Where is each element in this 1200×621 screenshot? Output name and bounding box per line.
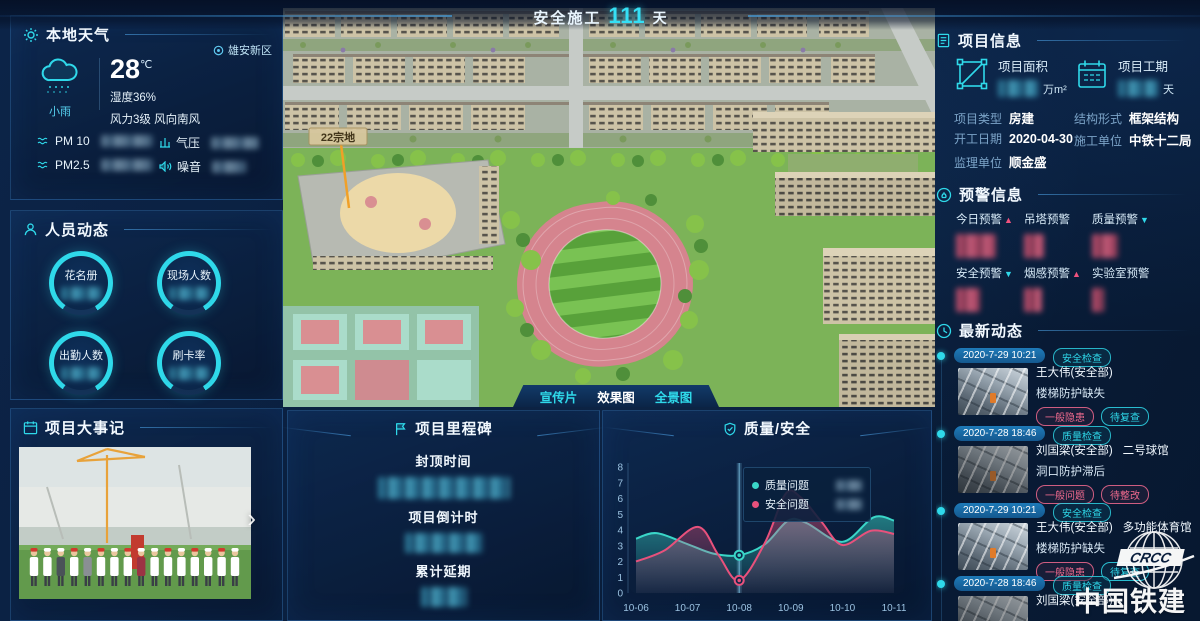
svg-text:10-11: 10-11 bbox=[882, 603, 907, 614]
personnel-panel-title: 人员动态 bbox=[45, 219, 109, 240]
aerial-render-view: 22宗地 bbox=[283, 8, 935, 407]
trend-up-icon: ▲ bbox=[1072, 269, 1081, 279]
wind-label: 风力3级 风向南风 bbox=[110, 111, 200, 127]
stat-label: 项目面积 bbox=[998, 56, 1067, 75]
timeline-dot bbox=[937, 507, 945, 515]
temperature-unit: ℃ bbox=[140, 59, 152, 71]
update-date: 2020-7-28 18:46 bbox=[954, 576, 1045, 591]
calendar-icon bbox=[23, 420, 38, 435]
stat-unit: 天 bbox=[1163, 81, 1174, 97]
temperature-value: 28 bbox=[110, 54, 140, 84]
hazard-tag: 一般问题 bbox=[1036, 485, 1094, 504]
update-photo bbox=[958, 368, 1028, 415]
field-structure-type: 结构形式框架结构 bbox=[1074, 108, 1179, 127]
alert-today: 今日预警▲ bbox=[956, 210, 1013, 258]
location-label: 雄安新区 bbox=[228, 42, 272, 58]
field-project-type: 项目类型房建 bbox=[954, 108, 1034, 127]
building-bottom-right bbox=[839, 340, 935, 407]
pressure-icon bbox=[159, 137, 171, 148]
alerts-title: 预警信息 bbox=[959, 184, 1023, 205]
aerial-render: 22宗地 bbox=[283, 8, 935, 407]
top-header: 安全施工 111 天 bbox=[0, 0, 1200, 30]
redacted-value bbox=[421, 587, 467, 607]
area-icon bbox=[954, 56, 990, 97]
milestone-countdown: 项目倒计时 bbox=[288, 507, 599, 558]
speaker-icon bbox=[159, 161, 172, 172]
safety-series-dot bbox=[752, 501, 759, 508]
svg-text:3: 3 bbox=[617, 541, 623, 552]
redacted-value bbox=[169, 367, 209, 380]
events-panel-title: 项目大事记 bbox=[45, 417, 125, 438]
milestone-label: 项目倒计时 bbox=[288, 507, 599, 526]
hazard-tag: 一般隐患 bbox=[1036, 407, 1094, 426]
updates-list: 2020-7-29 10:21 安全检查 王大伟(安全部) 楼梯防护缺失 一般隐… bbox=[936, 340, 1200, 621]
haze-icon bbox=[37, 136, 50, 147]
personnel-panel: 人员动态 花名册 现场人数 出勤人数 刷卡率 bbox=[10, 210, 283, 400]
update-issue: 洞口防护滞后 bbox=[1036, 463, 1200, 479]
redacted-value bbox=[956, 234, 996, 258]
weather-panel: 本地天气 雄安新区 bbox=[10, 15, 283, 200]
alert-safety: 安全预警▼ bbox=[956, 264, 1013, 312]
plot-label: 22宗地 bbox=[321, 130, 355, 144]
svg-text:10-09: 10-09 bbox=[778, 603, 804, 614]
alert-crane: 吊塔预警 bbox=[1024, 210, 1072, 258]
field-start-date: 开工日期2020-04-30 bbox=[954, 130, 1073, 147]
stat-label: 项目工期 bbox=[1118, 56, 1174, 75]
update-date: 2020-7-29 10:21 bbox=[954, 503, 1045, 518]
timeline-dot bbox=[937, 430, 945, 438]
redacted-value bbox=[836, 480, 862, 491]
location-pin-icon bbox=[213, 45, 224, 56]
view-button-render[interactable]: 效果图 bbox=[597, 387, 635, 406]
update-issue: 楼梯防护缺失 bbox=[1036, 385, 1200, 401]
status-tag: 待整改 bbox=[1101, 485, 1149, 504]
svg-text:10-08: 10-08 bbox=[726, 603, 752, 614]
chart-tooltip: 质量问题 安全问题 bbox=[743, 467, 871, 522]
project-info-section: 项目信息 项目面积 万m² 项目 bbox=[936, 22, 1196, 174]
quality-safety-title: 质量/安全 bbox=[744, 418, 811, 439]
quality-series-label: 质量问题 bbox=[765, 477, 809, 493]
metric-label: PM 10 bbox=[55, 134, 90, 148]
tooltip-row-safety: 安全问题 bbox=[752, 496, 862, 512]
milestone-label: 封顶时间 bbox=[288, 451, 599, 470]
updates-section: 最新动态 2020-7-29 10:21 安全检查 王大伟(安全部) 楼梯防护缺… bbox=[936, 312, 1200, 621]
update-entry[interactable]: 2020-7-28 18:46 质量检查 刘国梁(安全部)二号球馆 洞口防护滞后… bbox=[936, 426, 1200, 498]
header-line-right bbox=[748, 15, 1200, 17]
safety-days-unit: 天 bbox=[653, 8, 667, 28]
gauge-roster: 花名册 bbox=[49, 251, 113, 315]
metric-label: 噪音 bbox=[177, 158, 201, 175]
alert-quality: 质量预警▼ bbox=[1092, 210, 1149, 258]
update-entry[interactable]: 2020-7-28 18:46 质量检查 刘国梁(安全部) bbox=[936, 576, 1200, 621]
stat-project-area: 项目面积 万m² bbox=[954, 56, 1067, 97]
milestone-panel-title: 项目里程碑 bbox=[415, 418, 493, 439]
svg-text:10-10: 10-10 bbox=[830, 603, 856, 614]
view-switcher: 宣传片 效果图 全景图 bbox=[513, 385, 719, 407]
svg-text:6: 6 bbox=[617, 494, 623, 505]
quality-safety-panel: 质量/安全 01234567810-0610-0710-0810-0910-10… bbox=[602, 410, 932, 621]
update-person: 刘国梁(安全部) bbox=[1036, 445, 1113, 457]
milestone-panel: 项目里程碑 封顶时间 项目倒计时 累计延期 bbox=[287, 410, 600, 621]
metric-label: PM2.5 bbox=[55, 158, 90, 172]
gauge-label: 出勤人数 bbox=[59, 347, 103, 363]
alarm-bell-icon bbox=[936, 187, 952, 203]
milestone-topping-date: 封顶时间 bbox=[288, 451, 599, 504]
status-tag: 待复查 bbox=[1101, 407, 1149, 426]
clock-icon bbox=[936, 323, 952, 339]
update-photo bbox=[958, 446, 1028, 493]
person-icon bbox=[23, 222, 38, 237]
timeline-dot bbox=[937, 580, 945, 588]
trend-down-icon: ▼ bbox=[1004, 269, 1013, 279]
gauge-attendance: 出勤人数 bbox=[49, 331, 113, 395]
project-info-title: 项目信息 bbox=[958, 30, 1022, 51]
carousel-next-button[interactable]: › bbox=[247, 505, 256, 531]
update-issue: 楼梯防护缺失 bbox=[1036, 540, 1200, 556]
events-photo bbox=[19, 447, 251, 599]
alerts-section: 预警信息 今日预警▲ 吊塔预警 质量预警▼ 安全预警▼ 烟感预警▲ 实验室预警 bbox=[936, 176, 1196, 312]
svg-text:5: 5 bbox=[617, 510, 623, 521]
building-roof bbox=[839, 334, 935, 340]
redacted-value bbox=[1118, 80, 1158, 97]
tooltip-row-quality: 质量问题 bbox=[752, 477, 862, 493]
redacted-value bbox=[169, 287, 209, 300]
project-events-panel: 项目大事记 › bbox=[10, 408, 283, 621]
svg-text:0: 0 bbox=[617, 589, 623, 600]
weather-condition: 小雨 bbox=[29, 103, 91, 119]
quality-series-dot bbox=[752, 482, 759, 489]
weather-current: 小雨 28℃ 湿度36% 风力3级 风向南风 bbox=[29, 56, 200, 127]
svg-text:8: 8 bbox=[617, 463, 623, 474]
update-photo bbox=[958, 596, 1028, 621]
redacted-value bbox=[61, 287, 101, 300]
field-supervisor: 监理单位顺金盛 bbox=[954, 152, 1047, 171]
svg-text:7: 7 bbox=[617, 478, 623, 489]
update-person: 刘国梁(安全部) bbox=[1036, 595, 1113, 607]
stat-project-duration: 项目工期 天 bbox=[1074, 56, 1174, 97]
update-entry[interactable]: 2020-7-29 10:21 安全检查 王大伟(安全部)多功能体育馆 楼梯防护… bbox=[936, 503, 1200, 575]
dashboard: 22宗地 宣传片 效果图 全景图 安全施工 111 天 本地天气 bbox=[0, 0, 1200, 621]
calendar-stat-icon bbox=[1074, 56, 1110, 97]
milestone-label: 累计延期 bbox=[288, 561, 599, 580]
gauge-swipe-rate: 刷卡率 bbox=[157, 331, 221, 395]
update-date: 2020-7-29 10:21 bbox=[954, 348, 1045, 363]
redacted-value bbox=[211, 137, 259, 149]
gauge-label: 刷卡率 bbox=[173, 347, 206, 363]
redacted-value bbox=[61, 367, 101, 380]
field-contractor: 施工单位中铁十二局 bbox=[1074, 130, 1192, 149]
redacted-value bbox=[378, 477, 510, 499]
update-entry[interactable]: 2020-7-29 10:21 安全检查 王大伟(安全部) 楼梯防护缺失 一般隐… bbox=[936, 348, 1200, 420]
gauge-onsite: 现场人数 bbox=[157, 251, 221, 315]
redacted-value bbox=[1092, 234, 1118, 258]
quality-safety-chart[interactable]: 01234567810-0610-0710-0810-0910-1010-11 bbox=[603, 437, 933, 621]
divider bbox=[99, 58, 100, 110]
redacted-value bbox=[998, 80, 1038, 97]
safety-days-counter: 安全施工 111 天 bbox=[533, 3, 666, 29]
gauge-label: 现场人数 bbox=[167, 267, 211, 283]
update-photo bbox=[958, 523, 1028, 570]
redacted-value bbox=[1092, 288, 1104, 312]
safety-title: 安全施工 bbox=[533, 7, 601, 28]
update-venue: 多功能体育馆 bbox=[1123, 522, 1192, 534]
update-person: 王大伟(安全部) bbox=[1036, 522, 1113, 534]
update-date: 2020-7-28 18:46 bbox=[954, 426, 1045, 441]
redacted-value bbox=[405, 533, 483, 553]
alert-lab: 实验室预警 bbox=[1092, 264, 1152, 312]
gauge-label: 花名册 bbox=[65, 267, 98, 283]
redacted-value bbox=[101, 159, 153, 171]
humidity-label: 湿度36% bbox=[110, 89, 200, 105]
milestone-delay: 累计延期 bbox=[288, 561, 599, 612]
trend-down-icon: ▼ bbox=[1140, 215, 1149, 225]
stat-unit: 万m² bbox=[1043, 81, 1067, 97]
redacted-value bbox=[212, 161, 246, 173]
safety-days-value: 111 bbox=[608, 3, 645, 29]
svg-text:10-07: 10-07 bbox=[675, 603, 701, 614]
update-venue: 二号球馆 bbox=[1123, 445, 1169, 457]
svg-text:2: 2 bbox=[617, 557, 623, 568]
sports-courts bbox=[283, 306, 479, 407]
redacted-value bbox=[1024, 288, 1042, 312]
safety-series-label: 安全问题 bbox=[765, 496, 809, 512]
view-button-panorama[interactable]: 全景图 bbox=[655, 387, 693, 406]
view-button-promo[interactable]: 宣传片 bbox=[540, 387, 578, 406]
cloud-rain-icon bbox=[36, 56, 84, 96]
flag-icon bbox=[394, 422, 408, 436]
redacted-value bbox=[956, 288, 980, 312]
redacted-value bbox=[101, 135, 153, 147]
redacted-value bbox=[1024, 234, 1044, 258]
location-badge: 雄安新区 bbox=[213, 42, 272, 58]
metric-label: 气压 bbox=[176, 134, 200, 151]
update-person: 王大伟(安全部) bbox=[1036, 367, 1113, 379]
alert-smoke: 烟感预警▲ bbox=[1024, 264, 1081, 312]
document-icon bbox=[936, 33, 951, 48]
timeline-dot bbox=[937, 352, 945, 360]
haze-icon bbox=[37, 160, 50, 171]
shield-check-icon bbox=[723, 422, 737, 436]
svg-text:4: 4 bbox=[617, 526, 623, 537]
redacted-value bbox=[836, 499, 862, 510]
svg-text:10-06: 10-06 bbox=[623, 603, 649, 614]
svg-text:1: 1 bbox=[617, 573, 623, 584]
header-line-left bbox=[0, 15, 452, 17]
updates-title: 最新动态 bbox=[959, 320, 1023, 341]
trend-up-icon: ▲ bbox=[1004, 215, 1013, 225]
